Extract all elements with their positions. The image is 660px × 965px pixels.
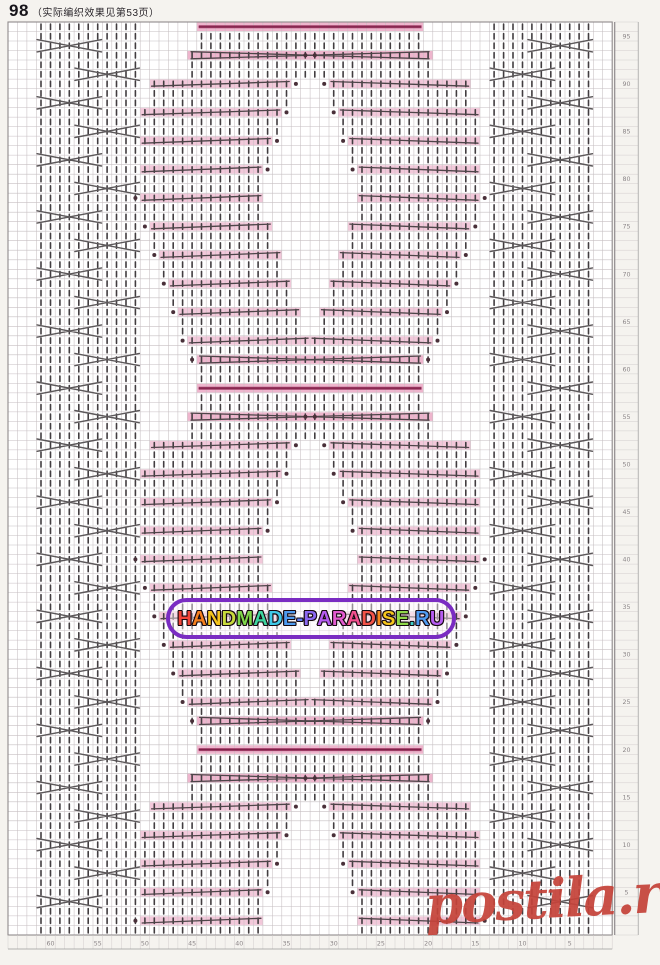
watermark-letter: R <box>332 609 347 629</box>
svg-text:35: 35 <box>283 941 291 948</box>
svg-text:5: 5 <box>568 941 572 948</box>
svg-text:35: 35 <box>622 604 630 611</box>
svg-text:10: 10 <box>519 941 527 948</box>
watermark-handmade-paradise: HANDMADE-PARADISE.RU <box>166 598 456 639</box>
chart-svg: 9590858075706560555045403530252015105605… <box>0 0 660 960</box>
svg-text:40: 40 <box>235 941 243 948</box>
svg-text:65: 65 <box>622 319 630 326</box>
svg-text:25: 25 <box>622 699 630 706</box>
pattern-note: （实际编织效果见第53页） <box>32 4 160 19</box>
svg-text:60: 60 <box>47 941 55 948</box>
watermark-letter: D <box>222 609 237 629</box>
svg-text:10: 10 <box>622 842 630 849</box>
watermark-letter: A <box>317 609 332 629</box>
watermark-letter: A <box>192 609 207 629</box>
svg-text:30: 30 <box>622 652 630 659</box>
watermark-letter: H <box>177 609 192 629</box>
svg-text:60: 60 <box>622 366 630 373</box>
svg-text:30: 30 <box>330 941 338 948</box>
svg-text:90: 90 <box>622 81 630 88</box>
watermark-letter: E <box>396 609 410 629</box>
watermark-letter: P <box>303 609 317 629</box>
watermark-letter: S <box>382 609 396 629</box>
svg-text:15: 15 <box>471 941 479 948</box>
svg-text:70: 70 <box>622 271 630 278</box>
svg-text:20: 20 <box>622 747 630 754</box>
svg-text:40: 40 <box>622 557 630 564</box>
page-header: 98 （实际编织效果见第53页） <box>9 0 160 22</box>
pattern-number: 98 <box>9 1 29 21</box>
svg-text:50: 50 <box>141 941 149 948</box>
watermark-letter: D <box>268 609 283 629</box>
watermark-letter: D <box>361 609 376 629</box>
svg-text:15: 15 <box>622 794 630 801</box>
svg-text:45: 45 <box>622 509 630 516</box>
svg-text:45: 45 <box>188 941 196 948</box>
svg-text:75: 75 <box>622 224 630 231</box>
watermark-letter: A <box>347 609 362 629</box>
svg-text:85: 85 <box>622 129 630 136</box>
watermark-letter: E <box>283 609 297 629</box>
svg-text:50: 50 <box>622 462 630 469</box>
watermark-letter: R <box>415 609 430 629</box>
watermark-letter: U <box>430 609 445 629</box>
svg-text:95: 95 <box>622 34 630 41</box>
watermark-letter: N <box>207 609 222 629</box>
svg-text:80: 80 <box>622 176 630 183</box>
knitting-chart: 9590858075706560555045403530252015105605… <box>0 0 660 965</box>
svg-text:55: 55 <box>622 414 630 421</box>
watermark-letter: M <box>236 609 253 629</box>
svg-text:55: 55 <box>94 941 102 948</box>
watermark-postila: postila.ru <box>424 859 660 937</box>
svg-text:20: 20 <box>424 941 432 948</box>
svg-text:25: 25 <box>377 941 385 948</box>
watermark-letter: A <box>253 609 268 629</box>
